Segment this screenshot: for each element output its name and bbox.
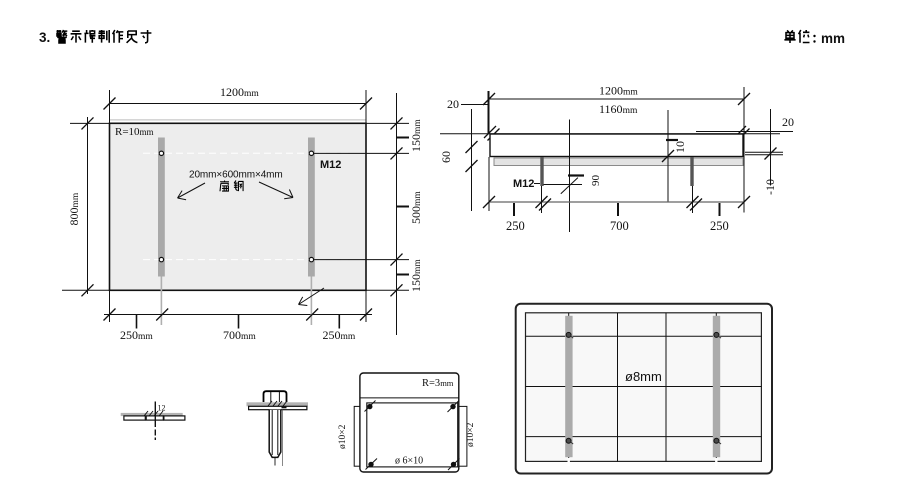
svg-text:90: 90	[590, 175, 602, 187]
svg-text:60: 60	[439, 151, 453, 163]
svg-text:ø10×2: ø10×2	[466, 422, 476, 447]
svg-text:150mm: 150mm	[409, 259, 423, 292]
svg-text:1160mm: 1160mm	[599, 102, 638, 116]
svg-text:250mm: 250mm	[323, 328, 356, 342]
svg-text:3.: 3.	[39, 30, 50, 45]
svg-text:M12: M12	[513, 178, 534, 190]
svg-text:250: 250	[710, 219, 729, 233]
svg-text:150mm: 150mm	[409, 119, 423, 152]
svg-text:20: 20	[447, 97, 459, 111]
svg-text:-10: -10	[763, 179, 777, 195]
svg-text:700: 700	[610, 219, 629, 233]
svg-text:1200mm: 1200mm	[220, 85, 259, 99]
svg-text:20: 20	[782, 115, 794, 129]
svg-text:700mm: 700mm	[223, 328, 256, 342]
svg-text:M12: M12	[320, 159, 341, 171]
svg-text:1200mm: 1200mm	[599, 84, 638, 98]
svg-text:ø 6×10: ø 6×10	[395, 456, 423, 467]
svg-text:mm: mm	[821, 31, 845, 46]
svg-text:500mm: 500mm	[409, 191, 423, 224]
svg-text:R=3mm: R=3mm	[422, 378, 454, 389]
svg-text:ø8mm: ø8mm	[625, 369, 662, 384]
svg-text:20mm×600mm×4mm: 20mm×600mm×4mm	[189, 170, 283, 181]
svg-text:800mm: 800mm	[67, 192, 81, 225]
svg-text:250: 250	[506, 219, 525, 233]
svg-text:12: 12	[158, 404, 166, 413]
svg-text:R=10mm: R=10mm	[115, 126, 154, 138]
svg-text:250mm: 250mm	[120, 328, 153, 342]
svg-text:10: 10	[673, 141, 687, 153]
svg-text:ø10×2: ø10×2	[338, 424, 348, 449]
